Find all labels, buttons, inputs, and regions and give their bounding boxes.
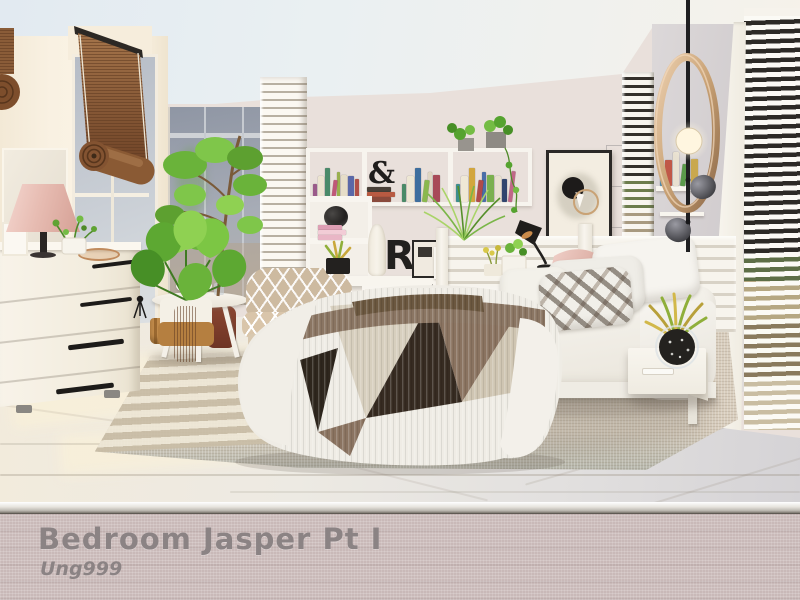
decor-shape	[671, 353, 674, 356]
banner-title: Bedroom Jasper Pt I	[38, 522, 382, 556]
pendant-light	[656, 0, 719, 252]
decor-shape	[681, 339, 684, 342]
screenshot-root: & R	[0, 0, 800, 600]
banner-fabric: Bedroom Jasper Pt I Ung999	[0, 514, 800, 600]
banner: Bedroom Jasper Pt I Ung999	[0, 502, 800, 600]
decor-shape	[669, 341, 672, 344]
decor-shape	[659, 329, 695, 365]
banner-author: Ung999	[40, 558, 122, 580]
decor-shape	[686, 178, 691, 183]
decor-shape	[679, 356, 681, 358]
decor-shape	[240, 288, 560, 470]
banner-metal-strip	[0, 502, 800, 514]
decor-shape	[676, 128, 702, 154]
nightstand-succulent	[646, 294, 706, 368]
bedroom-render-scene: & R	[0, 0, 800, 502]
scene-foreground-layer	[0, 0, 800, 502]
blanket	[235, 285, 565, 475]
decor-shape	[686, 220, 691, 225]
decor-shape	[687, 349, 690, 352]
